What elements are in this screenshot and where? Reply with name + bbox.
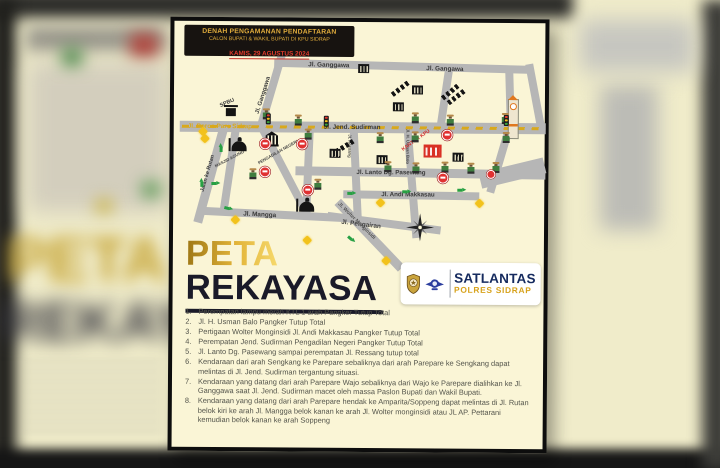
bg-green-blob (62, 48, 82, 66)
police-officer-icon (467, 163, 474, 174)
no-entry-sign-icon (259, 166, 270, 177)
list-item-number: 5. (185, 347, 198, 356)
label-ganggawa-top: Jl. Ganggawa (308, 62, 349, 70)
bg-gray-strip-topright (580, 20, 695, 72)
mosque-icon (299, 202, 314, 212)
police-officer-icon (384, 161, 391, 172)
bg-title-echo-gold: PETA (6, 230, 167, 292)
flow-arrow-icon (219, 143, 224, 152)
police-officer-icon (295, 115, 302, 126)
header-date: KAMIS, 29 AGUSTUS 2024 (229, 50, 309, 59)
flow-arrow-icon (402, 189, 411, 194)
list-item-number: 3. (185, 327, 198, 336)
flow-arrow-icon (347, 191, 356, 196)
label-jend-sudirman: Jl. Jend. Sudirman (324, 124, 381, 131)
list-item-text: Kendaraan dari arah Sengkang ke Parepare… (198, 357, 535, 378)
spbu-station-icon (226, 108, 236, 116)
police-officer-icon (441, 162, 448, 173)
post-marker-icon (303, 235, 312, 244)
list-item: 8.Kendaraan yang datang dari arah Parepa… (185, 396, 535, 426)
bg-right-band (702, 0, 720, 468)
bg-gray-strip-right (600, 85, 658, 230)
list-item-number: 1. (185, 307, 198, 316)
kpu-office-icon (424, 144, 442, 157)
compass-rose-icon (405, 212, 435, 242)
flow-arrow-icon (346, 235, 356, 245)
post-marker-icon (376, 198, 385, 207)
list-item-text: Kendaraan yang datang dari arah Parepare… (198, 377, 535, 398)
list-item-number: 4. (185, 337, 198, 346)
traffic-light-icon (266, 113, 271, 124)
list-item-number: 2. (185, 317, 198, 326)
building-icon (358, 64, 369, 73)
label-mangga: Jl. Mangga (243, 211, 276, 219)
police-officer-icon (412, 162, 419, 173)
instruction-list: 1.Perempatan lampu merah KTL 1 arah Pang… (185, 307, 536, 427)
no-entry-sign-icon (437, 173, 448, 184)
traffic-light-icon (324, 116, 329, 127)
bg-list-echo (22, 360, 162, 440)
poster-title-rekayasa: REKAYASA (186, 270, 378, 306)
vehicle-queue-icon (391, 81, 410, 97)
bg-red-blob (130, 34, 158, 56)
bg-green-blob-2 (142, 182, 160, 197)
no-entry-sign-icon (297, 139, 308, 150)
label-gangawa-top-right: Jl. Gangawa (426, 66, 463, 73)
satlantas-brand-box: SATLANTAS POLRES SIDRAP (401, 262, 541, 305)
police-officer-icon (412, 112, 419, 123)
police-officer-icon (412, 131, 419, 142)
traffic-light-icon (504, 115, 509, 126)
poster-header-box: DENAH PENGAMANAN PENDAFTARAN CALON BUPAT… (184, 25, 354, 57)
flow-arrow-icon (199, 178, 204, 187)
police-officer-icon (503, 132, 510, 143)
list-item-number: 6. (185, 357, 198, 376)
brand-divider (449, 270, 450, 298)
bg-top-band (0, 0, 573, 18)
list-item: 6.Kendaraan dari arah Sengkang ke Parepa… (185, 357, 535, 378)
bg-yellow-blob (96, 200, 112, 212)
screenshot-canvas: PETA REKAYAS DENAH PENGAMANAN PENDAFTARA… (0, 0, 720, 468)
flow-arrow-icon (211, 181, 220, 186)
poster-title-peta: PETA (186, 236, 279, 272)
police-officer-icon (314, 179, 321, 190)
list-item: 7.Kendaraan yang datang dari arah Parepa… (185, 377, 535, 398)
brand-subunit-name: POLRES SIDRAP (454, 286, 536, 296)
building-icon (453, 153, 464, 162)
traffic-plan-poster: DENAH PENGAMANAN PENDAFTARAN CALON BUPAT… (167, 17, 549, 454)
police-officer-icon (377, 132, 384, 143)
polri-shield-logo (406, 270, 422, 297)
no-entry-sign-icon (442, 130, 453, 141)
no-entry-sign-icon (302, 185, 313, 196)
building-icon (330, 149, 341, 158)
header-line-1: DENAH PENGAMANAN PENDAFTARAN (184, 28, 354, 36)
label-poros-pare-sidrap: Jl. Poros Pare Sidrap (188, 123, 252, 130)
police-officer-icon (447, 115, 454, 126)
post-marker-icon (475, 198, 484, 207)
stop-cone-icon (486, 170, 495, 179)
lantas-wing-logo (425, 274, 445, 293)
list-item-text: Kendaraan yang datang dari arah Parepare… (198, 396, 535, 426)
building-icon (393, 102, 404, 111)
no-entry-sign-icon (260, 138, 271, 149)
list-item-number: 8. (185, 396, 198, 424)
building-icon (412, 85, 423, 94)
mosque-icon (232, 141, 247, 151)
police-officer-icon (249, 168, 256, 179)
flow-arrow-icon (457, 188, 466, 193)
road-ganggawa-bend (525, 63, 545, 127)
police-officer-icon (305, 129, 312, 140)
list-item-number: 7. (185, 377, 198, 396)
